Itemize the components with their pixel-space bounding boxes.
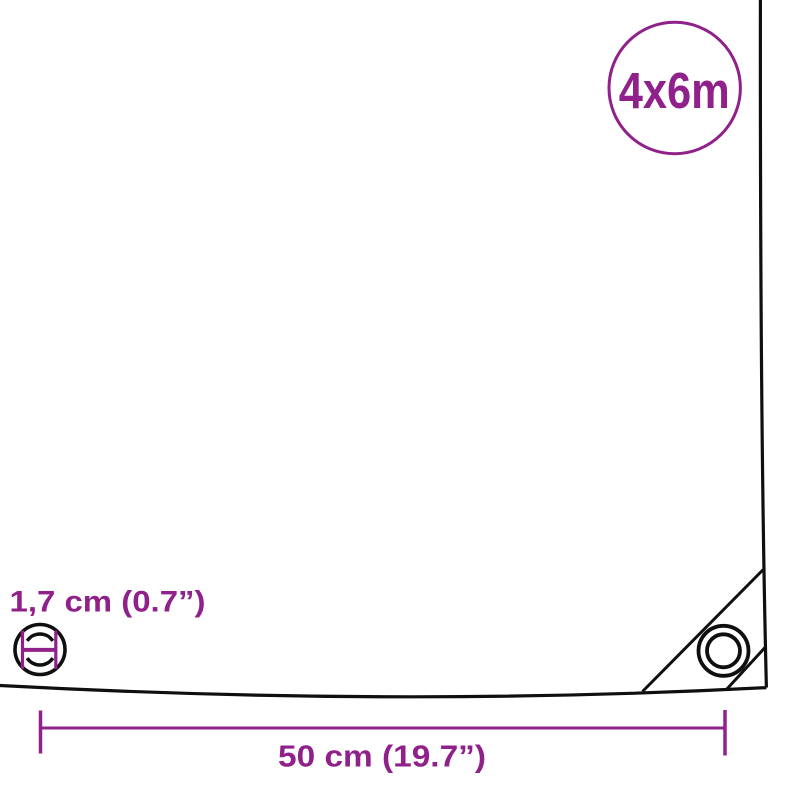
svg-text:4x6m: 4x6m: [619, 62, 730, 119]
svg-text:50 cm (19.7”): 50 cm (19.7”): [278, 739, 486, 774]
svg-text:1,7 cm (0.7”): 1,7 cm (0.7”): [10, 586, 206, 619]
